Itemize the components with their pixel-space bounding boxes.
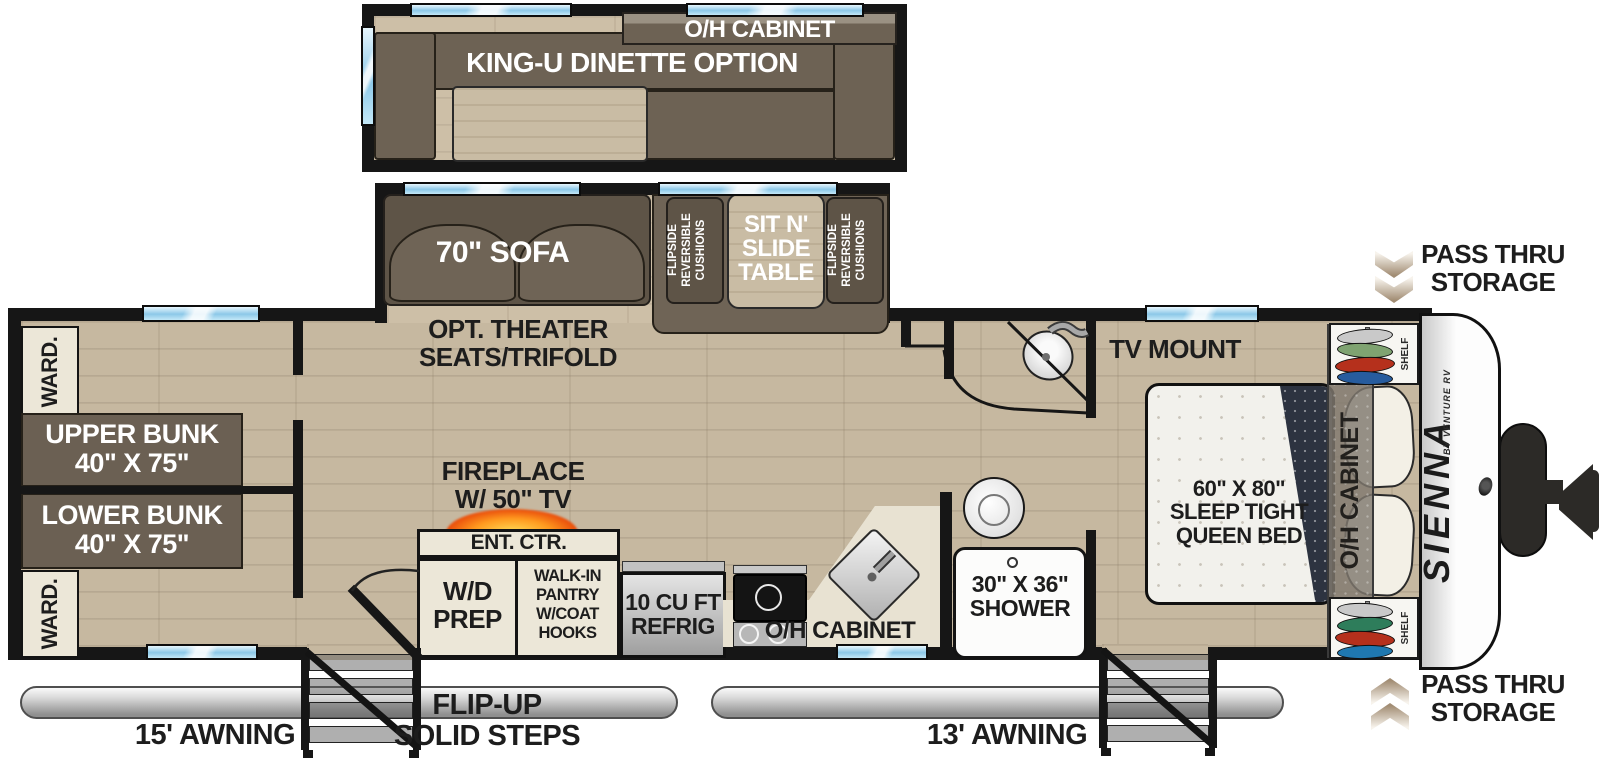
dinette-window-top-left [410, 3, 572, 17]
hitch-propane-cover [1499, 423, 1547, 557]
pass-thru-storage-label-bottom: PASS THRU STORAGE [1404, 671, 1582, 726]
dinette-window-side [361, 26, 375, 126]
step-tread [1107, 678, 1209, 695]
bunk-window-bottom [146, 644, 258, 660]
step-rail [1209, 648, 1217, 748]
awning-15-label: 15' AWNING [115, 720, 315, 751]
king-u-dinette-label: KING-U DINETTE OPTION [392, 48, 872, 78]
bedroom-window-top [1145, 305, 1259, 322]
dinette-oh-cabinet-label: O/H CABINET [622, 17, 897, 42]
step-foot [1101, 748, 1111, 756]
step-tread [1107, 725, 1209, 742]
shelf-top-label: SHELF [1400, 329, 1412, 379]
ent-ctr-label: ENT. CTR. [417, 532, 620, 554]
awning-13-label: 13' AWNING [912, 720, 1102, 751]
refrigerator-label: 10 CU FT REFRIG [620, 590, 726, 639]
tv-mount-label: TV MOUNT [1100, 336, 1250, 364]
step-tread [1107, 654, 1209, 671]
bunk-divider-wall [21, 486, 302, 494]
dinette-seat [643, 90, 835, 160]
cooktop-counter-strip [733, 565, 807, 574]
lower-bunk-label: LOWER BUNK 40" X 75" [21, 501, 243, 558]
sofa-window-right [658, 182, 838, 196]
bath-wall-stub-mid [944, 321, 954, 379]
pass-thru-storage-label-top: PASS THRU STORAGE [1404, 241, 1582, 296]
kitchen-oh-cabinet-label: O/H CABINET [745, 618, 935, 643]
flipside-cushion-right-label: FLIPSIDE REVERSIBLE CUSHIONS [827, 198, 883, 302]
hitch-coupler [1588, 470, 1599, 532]
kitchen-window-bottom [836, 644, 928, 660]
wardrobe-top-label: WARD. [22, 327, 78, 417]
flip-up-steps-label: FLIP-UP SOLID STEPS [382, 690, 592, 751]
step-foot [1205, 748, 1215, 756]
sofa-window-left [403, 182, 581, 196]
sit-n-slide-table-label: SIT N' SLIDE TABLE [727, 213, 825, 285]
toilet [963, 477, 1025, 539]
refrigerator-counter [622, 561, 725, 572]
bedroom-steps [1099, 646, 1217, 756]
bath-wall-right-lower [1086, 530, 1096, 647]
bunk-room-wall-upper [293, 321, 303, 375]
theater-seats-label: OPT. THEATER SEATS/TRIFOLD [398, 316, 638, 371]
wd-prep-label: W/D PREP [417, 578, 518, 633]
bunk-room-wall-lower [293, 420, 303, 598]
kayak-blue-icon [1337, 370, 1393, 386]
step-tread [1107, 702, 1209, 719]
step-tread [309, 654, 413, 671]
walk-in-pantry-label: WALK-IN PANTRY W/COAT HOOKS [515, 567, 620, 643]
bath-wall-right-upper [1086, 321, 1096, 418]
dinette-window-top-right [686, 3, 864, 17]
flipside-cushion-left-label: FLIPSIDE REVERSIBLE CUSHIONS [667, 198, 723, 302]
shelf-bottom-label: SHELF [1400, 603, 1412, 653]
wardrobe-bottom-label: WARD. [22, 569, 78, 659]
sofa-label: 70" SOFA [395, 237, 610, 269]
step-foot [303, 750, 313, 758]
fireplace-label: FIREPLACE W/ 50" TV [413, 458, 613, 513]
brand-sub-wordmark: BY VENTURE RV [1441, 357, 1453, 467]
upper-bunk-label: UPPER BUNK 40" X 75" [21, 420, 243, 477]
bed-oh-cabinet-label: O/H CABINET [1327, 341, 1373, 641]
shower-label: 30" X 36" SHOWER [953, 572, 1087, 621]
shower-head-icon [1007, 557, 1018, 568]
floorplan-canvas: O/H CABINET KING-U DINETTE OPTION 70" SO… [0, 0, 1599, 770]
bunk-window-top [142, 305, 260, 322]
bath-kitchen-wall [940, 492, 952, 647]
dinette-table [452, 86, 648, 162]
cooktop-burner-large [755, 584, 782, 611]
bath-wall-stub-left [901, 321, 911, 347]
kayak-blue-icon [1337, 644, 1393, 660]
queen-bed-label: 60" X 80" SLEEP TIGHT QUEEN BED [1155, 477, 1323, 547]
